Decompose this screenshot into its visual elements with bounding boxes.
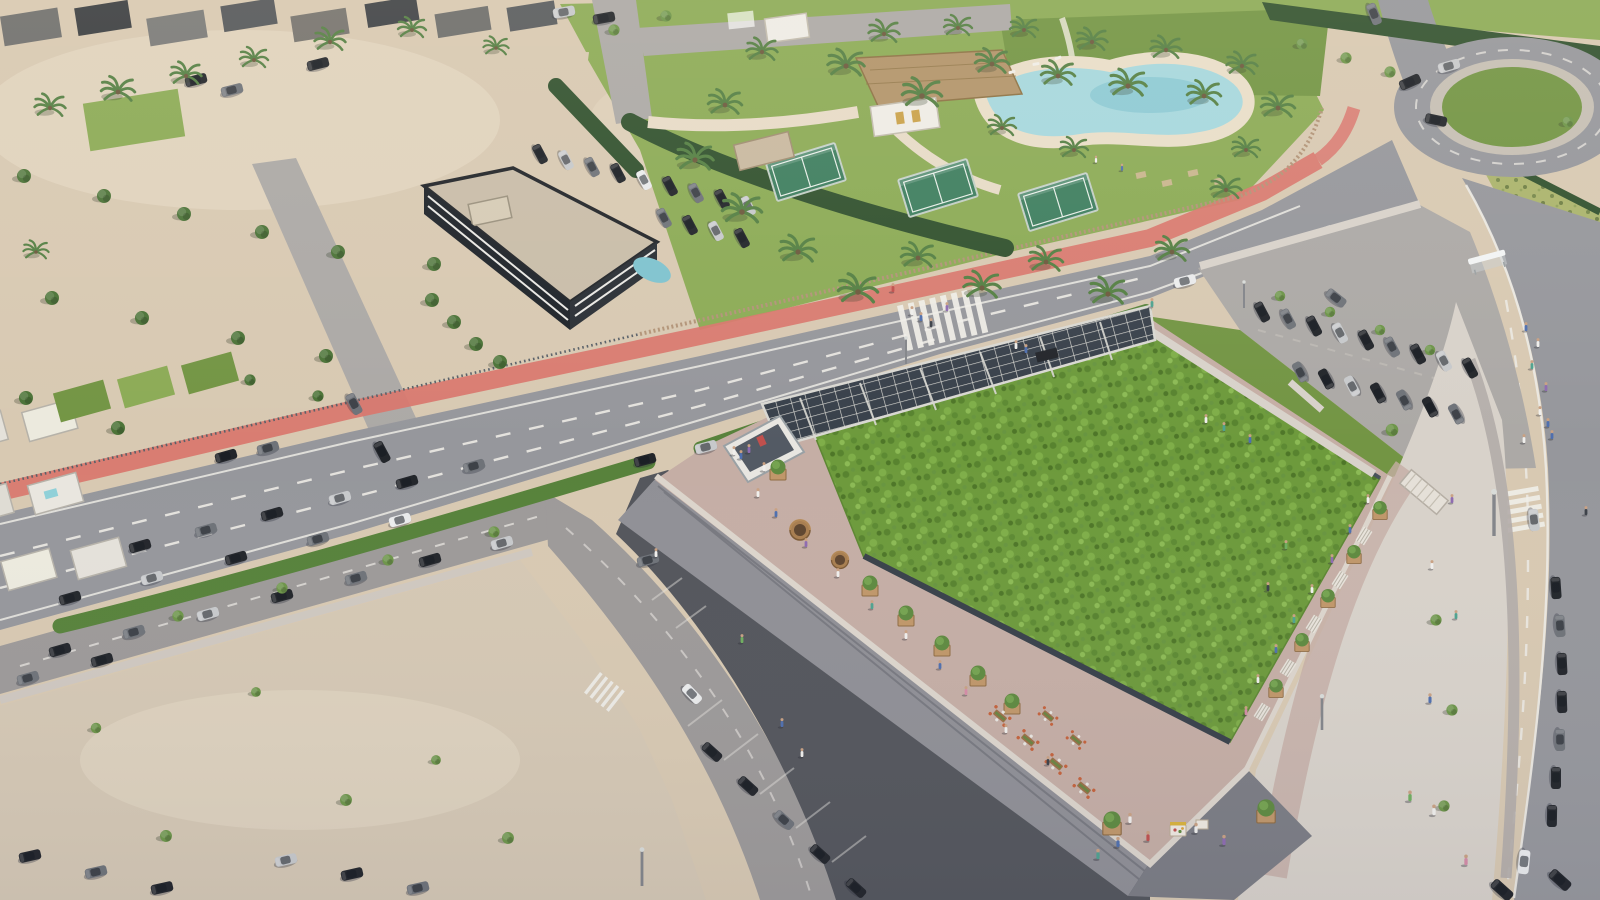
aerial-render (0, 0, 1600, 900)
atmosphere-overlay (0, 0, 1600, 900)
aerial-render-stage (0, 0, 1600, 900)
